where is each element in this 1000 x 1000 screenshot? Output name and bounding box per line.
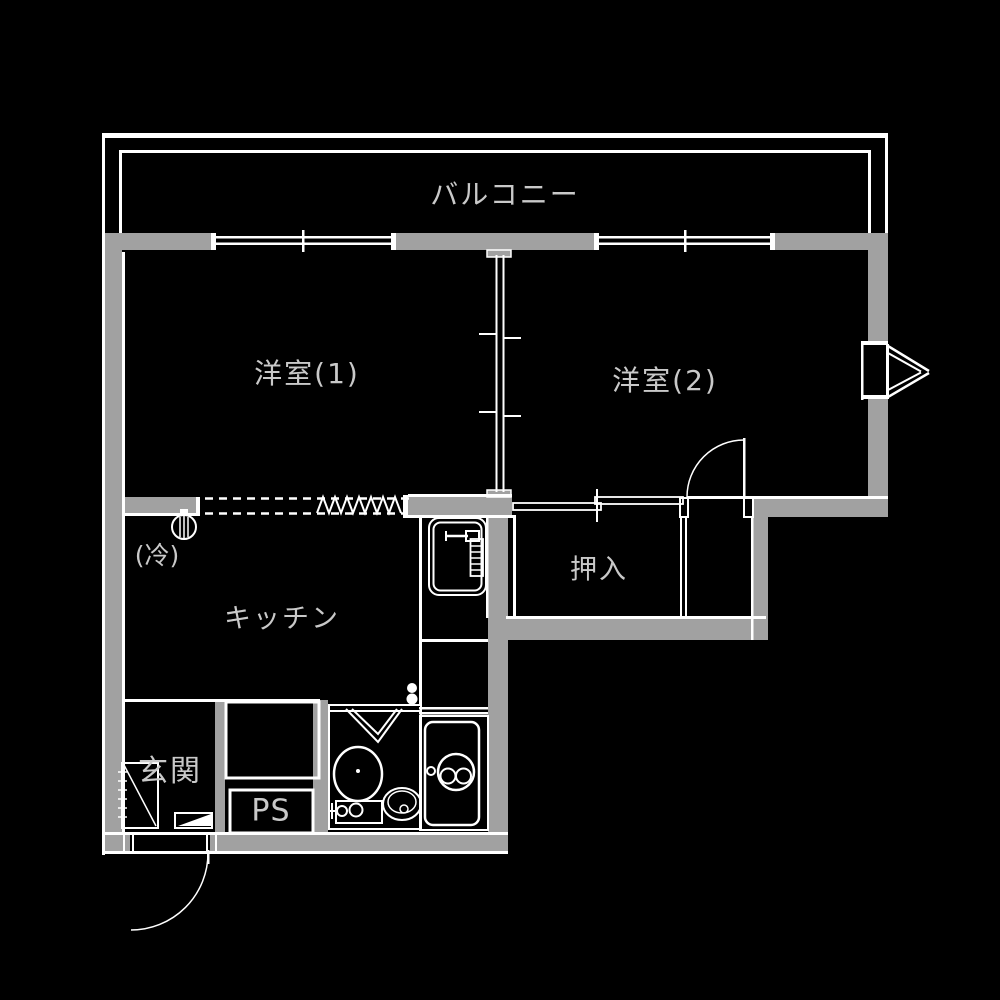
window-mullion <box>684 230 687 252</box>
bath-double-line <box>419 707 488 710</box>
label-entrance: 玄関 <box>138 746 202 790</box>
heater-dial-inner <box>456 769 471 784</box>
sliding-panel[interactable] <box>595 497 683 504</box>
window-cap <box>211 233 216 250</box>
vent-inner-edge <box>861 341 864 400</box>
balcony-outer-right <box>885 133 888 233</box>
room2-wall-edge <box>687 496 888 499</box>
heater-knob <box>427 767 435 775</box>
wall-left <box>105 233 122 853</box>
window-1 <box>211 230 396 252</box>
bath-divider-line <box>419 639 488 642</box>
door-jamb <box>744 498 753 517</box>
outer-left-line <box>102 133 105 855</box>
vent-cap <box>862 395 888 399</box>
balcony-inner-left <box>119 150 122 233</box>
closet-right-inner-edge <box>751 517 754 640</box>
label-refrigerator: (冷) <box>135 536 180 572</box>
window-cap <box>770 233 775 250</box>
closet-bottom-inner-edge <box>506 616 766 619</box>
partition-tab-top <box>487 250 511 257</box>
label-western-room1: 洋室(1) <box>254 352 360 392</box>
wall-vent-chevron <box>861 341 929 400</box>
bath-double-line <box>419 712 488 715</box>
entrance-door-arc <box>131 853 208 930</box>
toilet-bowl <box>334 747 382 801</box>
label-balcony: バルコニー <box>430 173 579 213</box>
sliding-door-tick <box>504 415 521 417</box>
balcony-inner-right <box>868 150 871 233</box>
door-swing-arc <box>687 440 744 497</box>
label-closet: 押入 <box>570 548 628 587</box>
vent-cap <box>862 341 888 345</box>
washbasin-inner <box>388 791 416 813</box>
sliding-door-tick <box>479 333 496 335</box>
floor-plan-drawing <box>0 0 1000 1000</box>
closet-right-line <box>680 517 682 618</box>
wall-bath-right <box>488 515 508 835</box>
label-pipe-space: PS <box>251 794 290 829</box>
bedroom-partition <box>479 250 521 497</box>
entrance-step-fill <box>178 814 211 826</box>
window-cap <box>594 233 599 250</box>
wall-mid-right <box>753 498 888 517</box>
washbasin-drain <box>400 805 408 813</box>
toilet-faucet <box>350 804 363 817</box>
pipe-bump <box>407 694 418 705</box>
bathtub-outer <box>429 518 486 595</box>
wall-end-cap <box>196 497 200 515</box>
toilet-flush-knob <box>337 806 347 816</box>
water-heater <box>420 716 488 830</box>
kitchen-bath-divider <box>419 515 422 705</box>
bath-column <box>407 515 489 715</box>
balcony-inner-top <box>119 150 871 153</box>
chevron-line <box>888 346 929 371</box>
wall-entrance-divider <box>215 700 225 835</box>
heater-dial-inner <box>441 769 456 784</box>
closet-right-line <box>685 517 687 618</box>
bottom-wall-outer-edge <box>102 851 508 854</box>
wall-right-lower <box>868 398 888 513</box>
left-wall-inner-edge <box>122 252 125 832</box>
sliding-door-tick <box>504 337 521 339</box>
balcony-outer-top <box>103 133 888 138</box>
door-jamb <box>680 498 688 517</box>
label-western-room2: 洋室(2) <box>612 359 718 399</box>
closet-top-edge <box>490 515 515 518</box>
room2-door[interactable] <box>680 438 753 517</box>
pipe-bump <box>407 683 417 693</box>
floor-plan: バルコニー 洋室(1) 洋室(2) 押入 キッチン (冷) 玄関 PS <box>0 0 1000 1000</box>
closet-left-line <box>513 515 516 618</box>
partition-line <box>503 255 505 492</box>
wall-bottom-right <box>210 835 508 853</box>
storage-box <box>226 702 319 778</box>
window-cap <box>391 233 396 250</box>
sliding-door-tick <box>479 411 496 413</box>
wall-mid-center <box>408 497 512 515</box>
panel-overlap-tick <box>596 489 598 522</box>
wall-right-upper <box>868 233 888 343</box>
window-mullion <box>302 230 305 252</box>
kitchen-partition <box>205 497 410 514</box>
sliding-panel[interactable] <box>513 503 601 510</box>
door-leaf[interactable] <box>743 438 746 499</box>
bathtub <box>429 518 486 595</box>
toilet-room <box>329 705 421 829</box>
wall-top-middle <box>396 233 594 250</box>
partition-line <box>496 255 498 492</box>
wall-closet-bottom <box>490 618 768 640</box>
label-kitchen: キッチン <box>224 597 340 636</box>
chevron-line <box>888 373 929 397</box>
toilet-bowl-dot <box>356 769 360 773</box>
bathtub-inner <box>434 523 482 591</box>
wall-bottom-left <box>106 835 130 853</box>
window-2 <box>594 230 775 252</box>
